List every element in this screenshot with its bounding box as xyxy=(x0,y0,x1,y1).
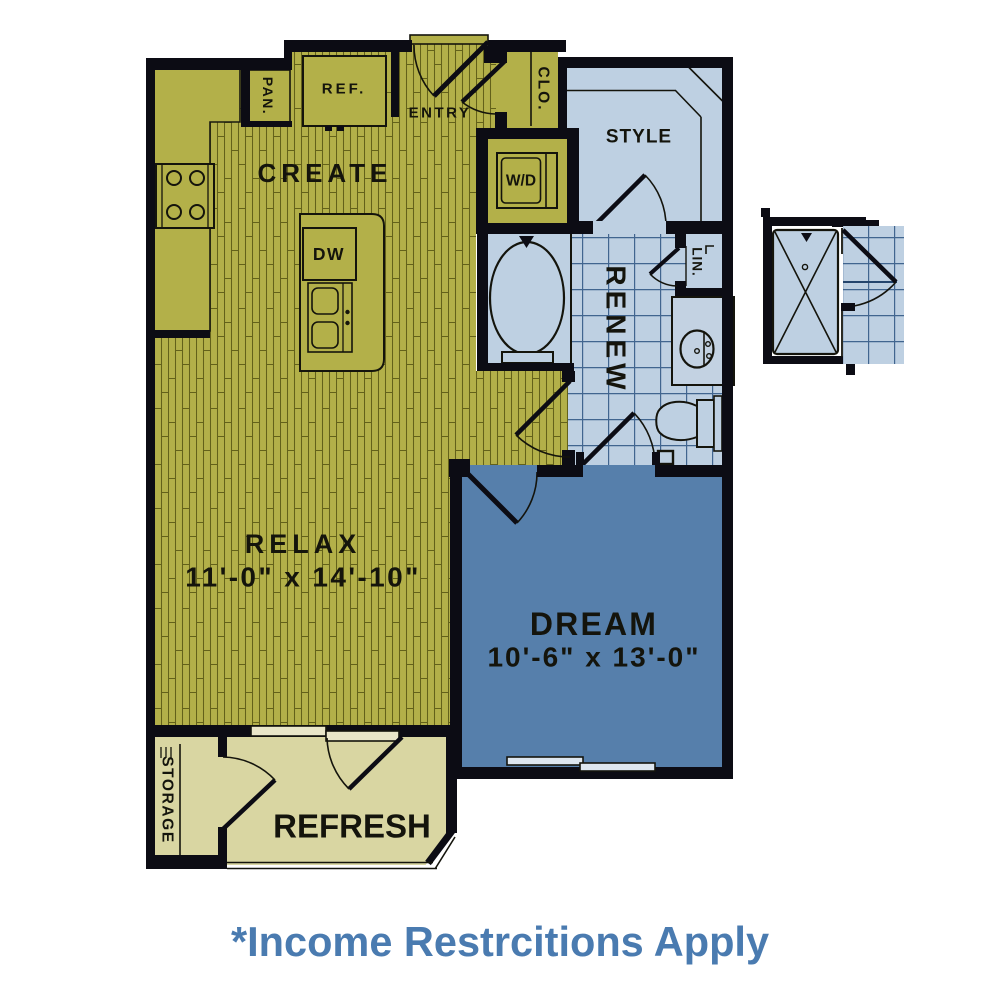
svg-text:*Income Restrcitions Apply: *Income Restrcitions Apply xyxy=(231,918,769,965)
svg-text:REF.: REF. xyxy=(322,81,367,98)
svg-text:DW: DW xyxy=(313,244,345,264)
svg-text:10'-6" x 13'-0": 10'-6" x 13'-0" xyxy=(487,642,700,673)
svg-text:11'-0" x 14'-10": 11'-0" x 14'-10" xyxy=(185,562,421,593)
svg-text:CREATE: CREATE xyxy=(258,158,393,188)
svg-text:REFRESH: REFRESH xyxy=(273,808,431,845)
svg-text:LIN.: LIN. xyxy=(690,247,705,277)
svg-text:ENTRY: ENTRY xyxy=(409,105,472,122)
svg-text:PAN.: PAN. xyxy=(260,77,276,115)
svg-text:CLO.: CLO. xyxy=(535,66,552,111)
svg-text:DREAM: DREAM xyxy=(530,606,658,642)
svg-text:W/D: W/D xyxy=(506,173,536,190)
svg-text:STYLE: STYLE xyxy=(606,127,672,148)
svg-text:RELAX: RELAX xyxy=(245,529,362,559)
svg-text:RENEW: RENEW xyxy=(601,265,632,394)
svg-text:STORAGE: STORAGE xyxy=(159,756,176,844)
